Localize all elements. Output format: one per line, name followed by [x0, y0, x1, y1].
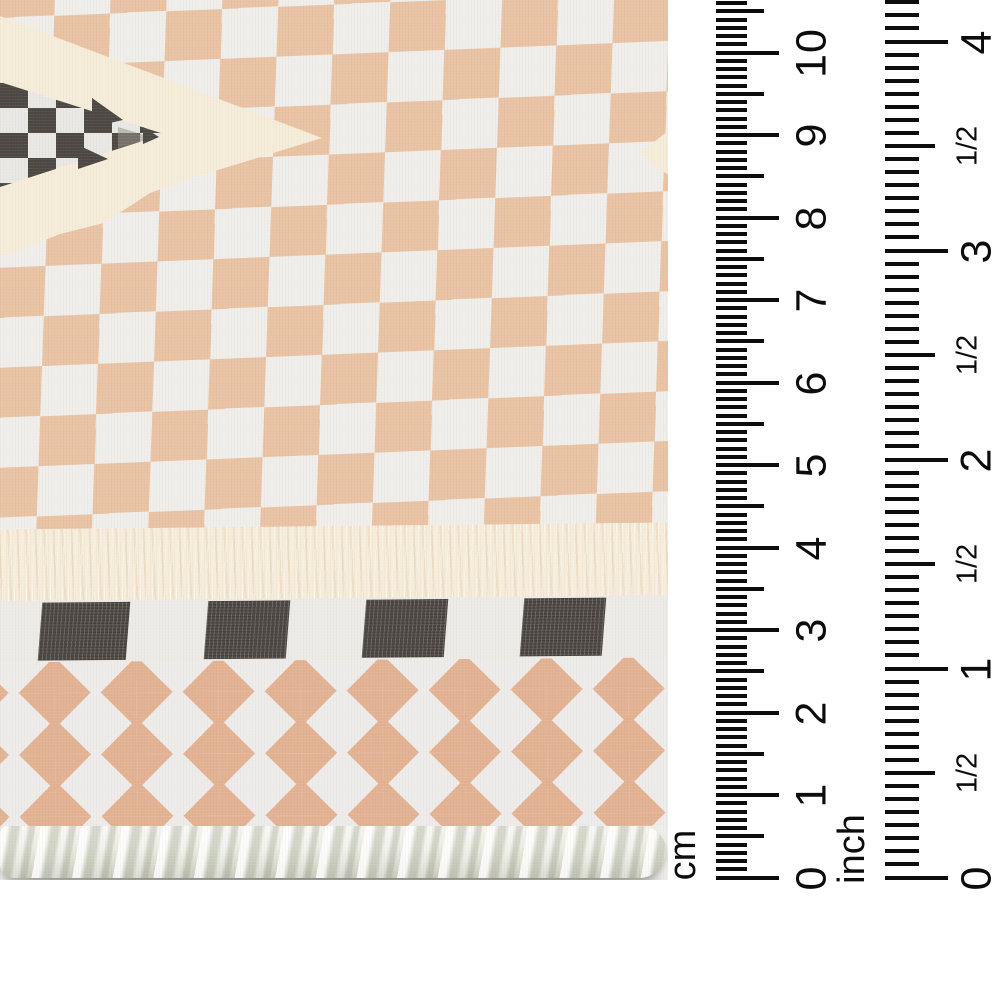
inch-tick	[885, 222, 919, 226]
inch-tick	[885, 353, 935, 357]
cm-tick	[716, 801, 747, 805]
cm-tick	[716, 661, 747, 665]
cm-tick	[716, 768, 747, 772]
inch-tick	[885, 170, 919, 174]
inch-tick	[885, 196, 919, 200]
inch-tick	[885, 92, 919, 96]
cm-tick	[716, 612, 747, 616]
cm-tick	[716, 166, 747, 170]
cm-tick	[716, 727, 747, 731]
inch-tick	[885, 823, 919, 827]
cm-tick	[716, 430, 747, 434]
cm-tick	[716, 826, 747, 830]
cm-number-5: 5	[791, 453, 834, 478]
inch-tick	[885, 771, 935, 775]
cm-tick	[716, 34, 747, 38]
cm-tick	[716, 84, 747, 88]
cm-tick	[716, 867, 747, 871]
inch-number-2: 2	[956, 447, 999, 472]
inch-tick	[885, 575, 919, 579]
cm-tick	[716, 364, 747, 368]
inch-tick	[885, 614, 919, 618]
cm-tick	[716, 348, 747, 352]
inch-tick	[885, 105, 919, 109]
inch-tick	[885, 26, 919, 30]
inch-tick	[885, 693, 919, 697]
cm-tick	[716, 108, 747, 112]
inch-number-1: 1	[956, 656, 999, 681]
cm-tick	[716, 447, 747, 451]
inch-tick	[885, 144, 935, 148]
cm-tick	[716, 711, 779, 715]
rug-scale-photo: cm inch 012345678910012341/21/21/21/2	[0, 0, 1000, 1000]
inch-tick	[885, 484, 919, 488]
inch-tick	[885, 314, 919, 318]
inch-tick	[885, 40, 948, 44]
cm-tick	[716, 570, 747, 574]
cm-tick	[716, 306, 747, 310]
inch-tick	[885, 536, 919, 540]
cm-tick	[716, 595, 747, 599]
cm-tick	[716, 785, 747, 789]
cm-tick	[716, 265, 747, 269]
cm-tick	[716, 669, 764, 673]
inch-tick	[885, 680, 919, 684]
cm-tick	[716, 240, 747, 244]
cm-number-8: 8	[791, 205, 834, 230]
cm-number-4: 4	[791, 535, 834, 560]
cm-tick	[716, 744, 747, 748]
cm-tick	[716, 702, 747, 706]
cm-tick	[716, 42, 747, 46]
cm-tick	[716, 75, 747, 79]
cm-tick	[716, 521, 747, 525]
cm-tick	[716, 389, 747, 393]
cm-tick	[716, 438, 747, 442]
cm-tick	[716, 183, 747, 187]
inch-tick	[885, 431, 919, 435]
cm-tick	[716, 455, 747, 459]
inch-tick	[885, 588, 919, 592]
cm-tick	[716, 422, 764, 426]
inch-tick	[885, 131, 919, 135]
cm-tick	[716, 207, 747, 211]
inch-tick	[885, 53, 919, 57]
inch-tick	[885, 340, 919, 344]
cm-tick	[716, 59, 747, 63]
cm-tick	[716, 224, 747, 228]
cm-tick	[716, 249, 747, 253]
cm-tick	[716, 1, 747, 5]
cm-tick	[716, 653, 747, 657]
cm-tick	[716, 339, 764, 343]
inch-number-0: 0	[956, 865, 999, 890]
cm-tick	[716, 414, 747, 418]
cm-tick	[716, 752, 764, 756]
measurement-rulers: cm inch 012345678910012341/21/21/21/2	[0, 0, 1000, 1000]
cm-tick	[716, 546, 779, 550]
cm-number-2: 2	[791, 700, 834, 725]
cm-tick	[716, 628, 779, 632]
cm-tick	[716, 851, 747, 855]
cm-tick	[716, 562, 747, 566]
cm-tick	[716, 232, 747, 236]
cm-tick	[716, 818, 747, 822]
inch-tick	[885, 876, 948, 880]
inch-half-label: 1/2	[954, 126, 983, 166]
cm-tick	[716, 315, 747, 319]
cm-tick	[716, 290, 747, 294]
inch-tick	[885, 627, 919, 631]
cm-number-10: 10	[791, 28, 834, 78]
cm-tick	[716, 678, 747, 682]
inch-tick	[885, 0, 919, 4]
cm-tick	[716, 636, 747, 640]
inch-tick	[885, 862, 919, 866]
cm-tick	[716, 513, 747, 517]
cm-tick	[716, 496, 747, 500]
cm-tick	[716, 141, 747, 145]
inch-tick	[885, 549, 919, 553]
cm-number-0: 0	[791, 865, 834, 890]
cm-tick	[716, 719, 747, 723]
inch-number-3: 3	[956, 238, 999, 263]
inch-tick	[885, 706, 919, 710]
cm-tick	[716, 273, 747, 277]
cm-tick	[716, 216, 779, 220]
cm-tick	[716, 810, 747, 814]
inch-number-4: 4	[956, 29, 999, 54]
cm-tick	[716, 471, 747, 475]
cm-tick	[716, 100, 747, 104]
inch-tick	[885, 301, 919, 305]
cm-tick	[716, 174, 764, 178]
cm-tick	[716, 876, 779, 880]
cm-tick	[716, 579, 747, 583]
inch-tick	[885, 379, 919, 383]
cm-number-9: 9	[791, 123, 834, 148]
cm-tick	[716, 257, 764, 261]
inch-tick	[885, 458, 948, 462]
cm-tick	[716, 405, 747, 409]
cm-tick	[716, 777, 747, 781]
cm-tick	[716, 381, 779, 385]
inch-tick	[885, 444, 919, 448]
inch-tick	[885, 275, 919, 279]
cm-tick	[716, 504, 764, 508]
cm-tick	[716, 463, 779, 467]
inch-tick	[885, 157, 919, 161]
inch-tick	[885, 79, 919, 83]
cm-tick	[716, 67, 747, 71]
inch-tick	[885, 653, 919, 657]
inch-tick	[885, 288, 919, 292]
inch-half-label: 1/2	[954, 335, 983, 375]
cm-tick	[716, 372, 747, 376]
cm-tick	[716, 158, 747, 162]
inch-half-label: 1/2	[954, 753, 983, 793]
cm-tick	[716, 397, 747, 401]
inch-tick	[885, 667, 948, 671]
cm-tick	[716, 51, 779, 55]
cm-tick	[716, 834, 764, 838]
cm-tick	[716, 133, 779, 137]
cm-tick	[716, 117, 747, 121]
inch-tick	[885, 562, 935, 566]
cm-tick	[716, 529, 747, 533]
inch-tick	[885, 745, 919, 749]
cm-number-3: 3	[791, 618, 834, 643]
inch-tick	[885, 810, 919, 814]
inch-tick	[885, 366, 919, 370]
cm-tick	[716, 603, 747, 607]
inch-tick	[885, 209, 919, 213]
inch-tick	[885, 327, 919, 331]
inch-tick	[885, 510, 919, 514]
cm-tick	[716, 331, 747, 335]
cm-unit-label: cm	[664, 830, 702, 881]
cm-tick	[716, 282, 747, 286]
cm-tick	[716, 554, 747, 558]
inch-tick	[885, 758, 919, 762]
inch-unit-label: inch	[833, 814, 871, 884]
cm-number-6: 6	[791, 370, 834, 395]
inch-tick	[885, 118, 919, 122]
inch-tick	[885, 13, 919, 17]
cm-tick	[716, 480, 747, 484]
cm-tick	[716, 199, 747, 203]
cm-tick	[716, 18, 747, 22]
inch-tick	[885, 262, 919, 266]
cm-tick	[716, 645, 747, 649]
inch-tick	[885, 66, 919, 70]
inch-tick	[885, 249, 948, 253]
inch-tick	[885, 732, 919, 736]
inch-tick	[885, 497, 919, 501]
cm-tick	[716, 9, 764, 13]
inch-tick	[885, 719, 919, 723]
cm-tick	[716, 323, 747, 327]
inch-tick	[885, 849, 919, 853]
cm-tick	[716, 537, 747, 541]
cm-tick	[716, 686, 747, 690]
inch-tick	[885, 640, 919, 644]
inch-tick	[885, 418, 919, 422]
cm-tick	[716, 191, 747, 195]
cm-number-7: 7	[791, 288, 834, 313]
cm-tick	[716, 620, 747, 624]
inch-tick	[885, 392, 919, 396]
cm-tick	[716, 760, 747, 764]
cm-number-1: 1	[791, 783, 834, 808]
cm-tick	[716, 488, 747, 492]
cm-tick	[716, 298, 779, 302]
inch-tick	[885, 235, 919, 239]
cm-tick	[716, 735, 747, 739]
cm-tick	[716, 587, 764, 591]
cm-tick	[716, 793, 779, 797]
inch-tick	[885, 784, 919, 788]
inch-tick	[885, 836, 919, 840]
inch-tick	[885, 797, 919, 801]
inch-tick	[885, 183, 919, 187]
cm-tick	[716, 26, 747, 30]
inch-tick	[885, 523, 919, 527]
cm-tick	[716, 843, 747, 847]
cm-tick	[716, 150, 747, 154]
cm-tick	[716, 356, 747, 360]
inch-half-label: 1/2	[954, 544, 983, 584]
cm-tick	[716, 92, 764, 96]
cm-tick	[716, 125, 747, 129]
inch-tick	[885, 405, 919, 409]
cm-tick	[716, 859, 747, 863]
cm-tick	[716, 694, 747, 698]
inch-tick	[885, 601, 919, 605]
inch-tick	[885, 471, 919, 475]
